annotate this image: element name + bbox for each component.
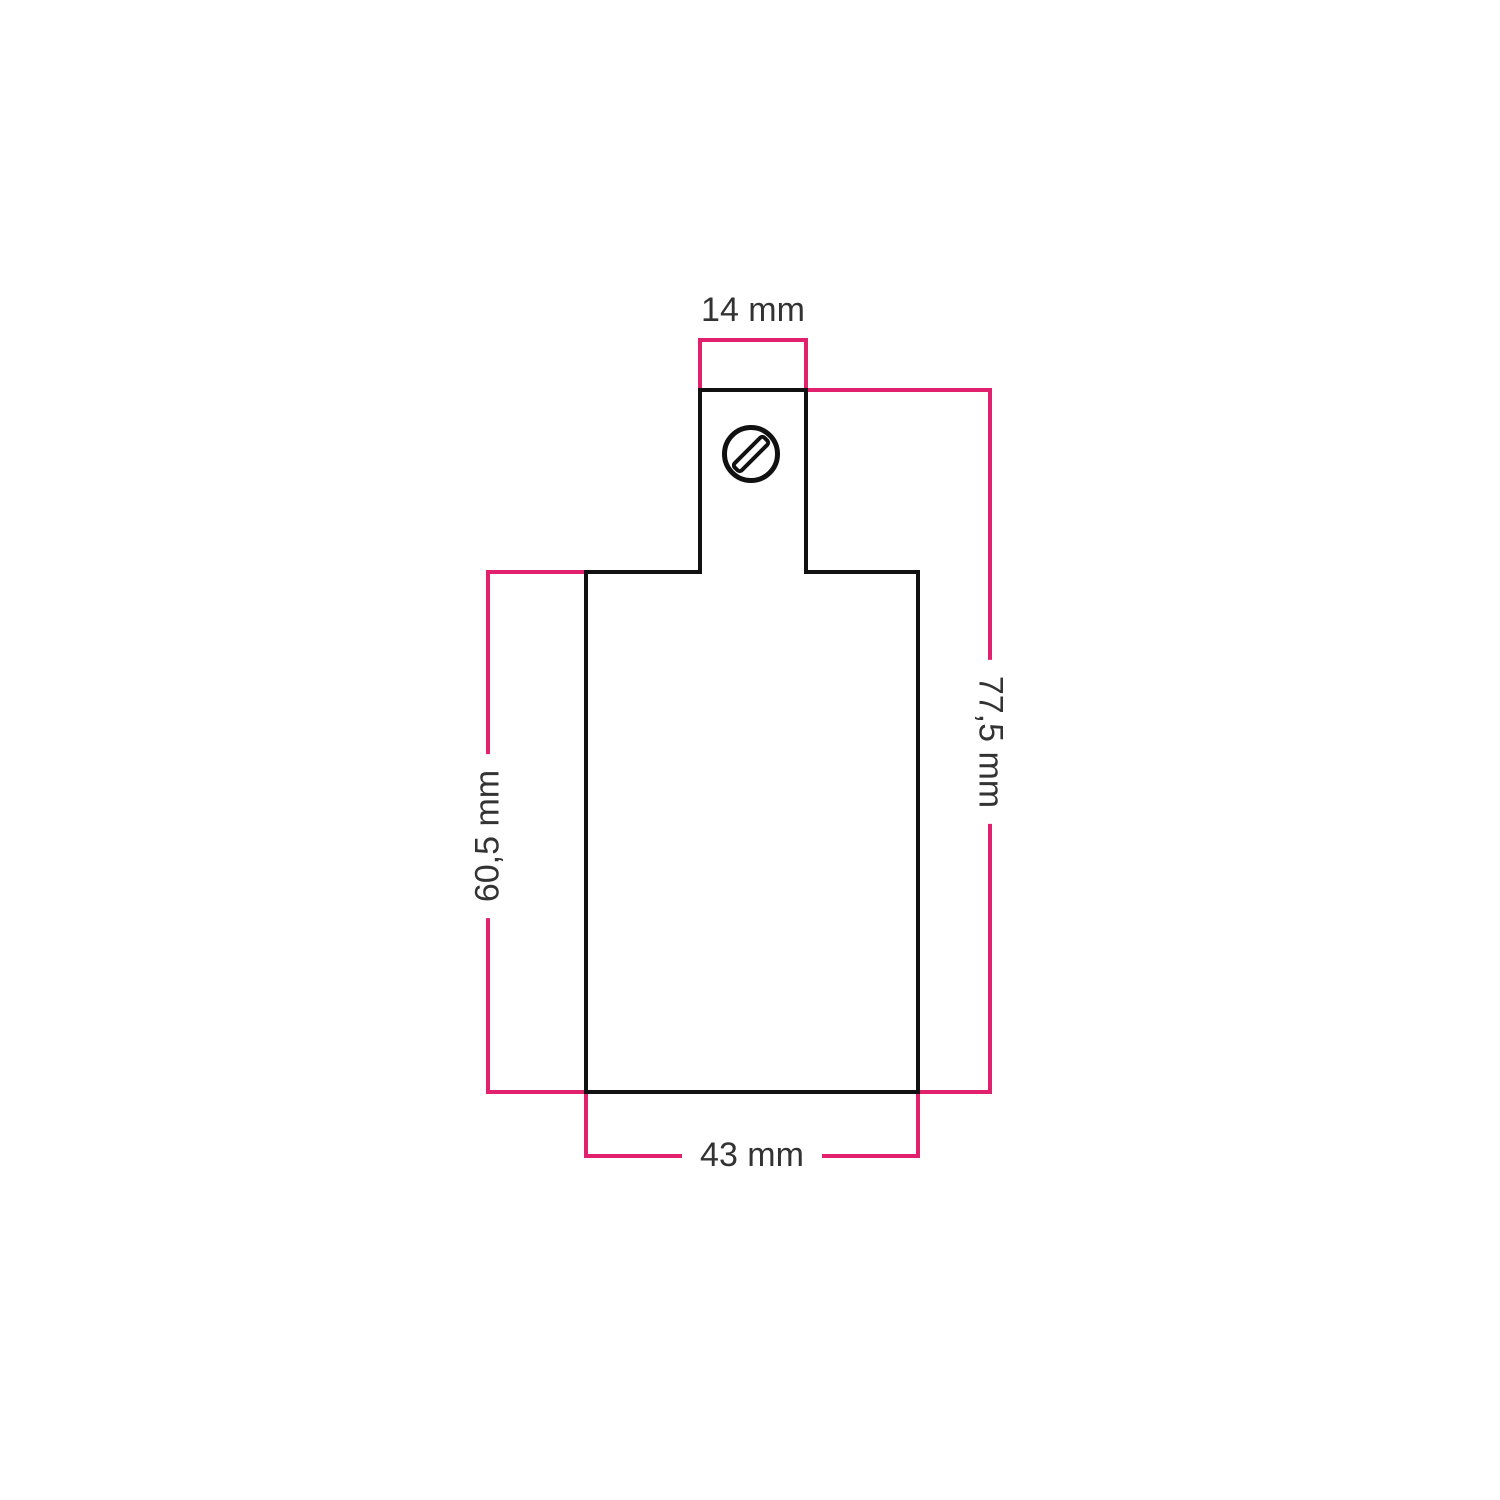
dimension-label-right-height: 77,5 mm [971,660,1008,824]
dimension-connector-right-top [808,388,988,392]
dimension-label-top-width: 14 mm [603,292,903,329]
lampholder-body-outline [584,570,920,1094]
dimension-bracket-top-width [698,338,808,388]
dimension-label-bottom-width-wrap: 43 mm [602,1136,902,1176]
dimension-diagram: 14 mm 77,5 mm 60,5 mm 43 mm [0,0,1500,1500]
dimension-connector-right-bottom [920,1090,988,1094]
dimension-label-bottom-width: 43 mm [682,1137,822,1174]
screw-head-icon [722,425,780,483]
screw-slot-icon [730,433,772,475]
dimension-label-left-height: 60,5 mm [469,754,506,918]
dimension-connector-left-top [486,570,584,574]
dimension-connector-left-bottom [486,1090,584,1094]
